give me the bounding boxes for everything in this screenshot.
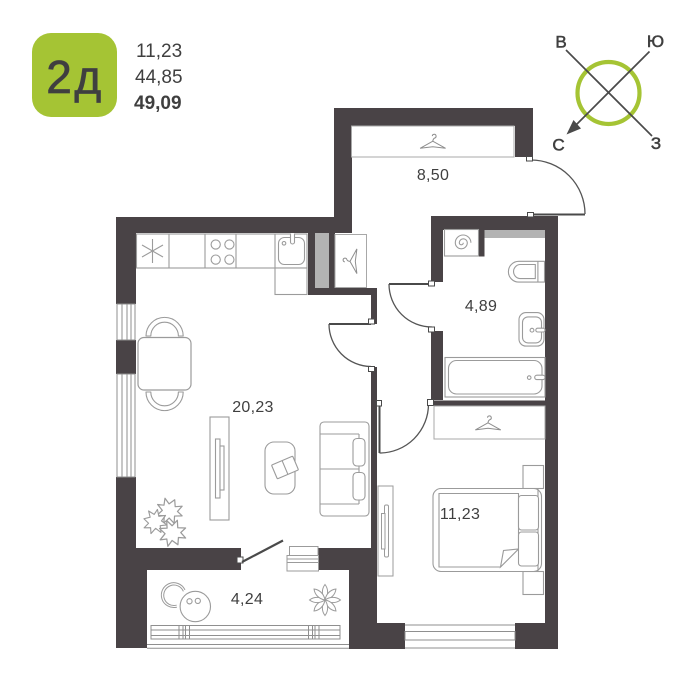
- svg-text:44,85: 44,85: [135, 67, 183, 88]
- svg-text:11,23: 11,23: [440, 506, 480, 523]
- svg-text:4,89: 4,89: [465, 298, 497, 315]
- svg-text:С: С: [552, 136, 564, 155]
- svg-text:З: З: [651, 134, 661, 153]
- svg-text:49,09: 49,09: [134, 93, 182, 114]
- svg-text:8,50: 8,50: [417, 167, 449, 184]
- svg-text:2д: 2д: [46, 51, 103, 103]
- svg-text:В: В: [555, 33, 566, 52]
- svg-text:11,23: 11,23: [136, 41, 182, 62]
- svg-text:Ю: Ю: [647, 32, 664, 51]
- svg-text:4,24: 4,24: [231, 591, 263, 608]
- svg-text:20,23: 20,23: [232, 399, 274, 416]
